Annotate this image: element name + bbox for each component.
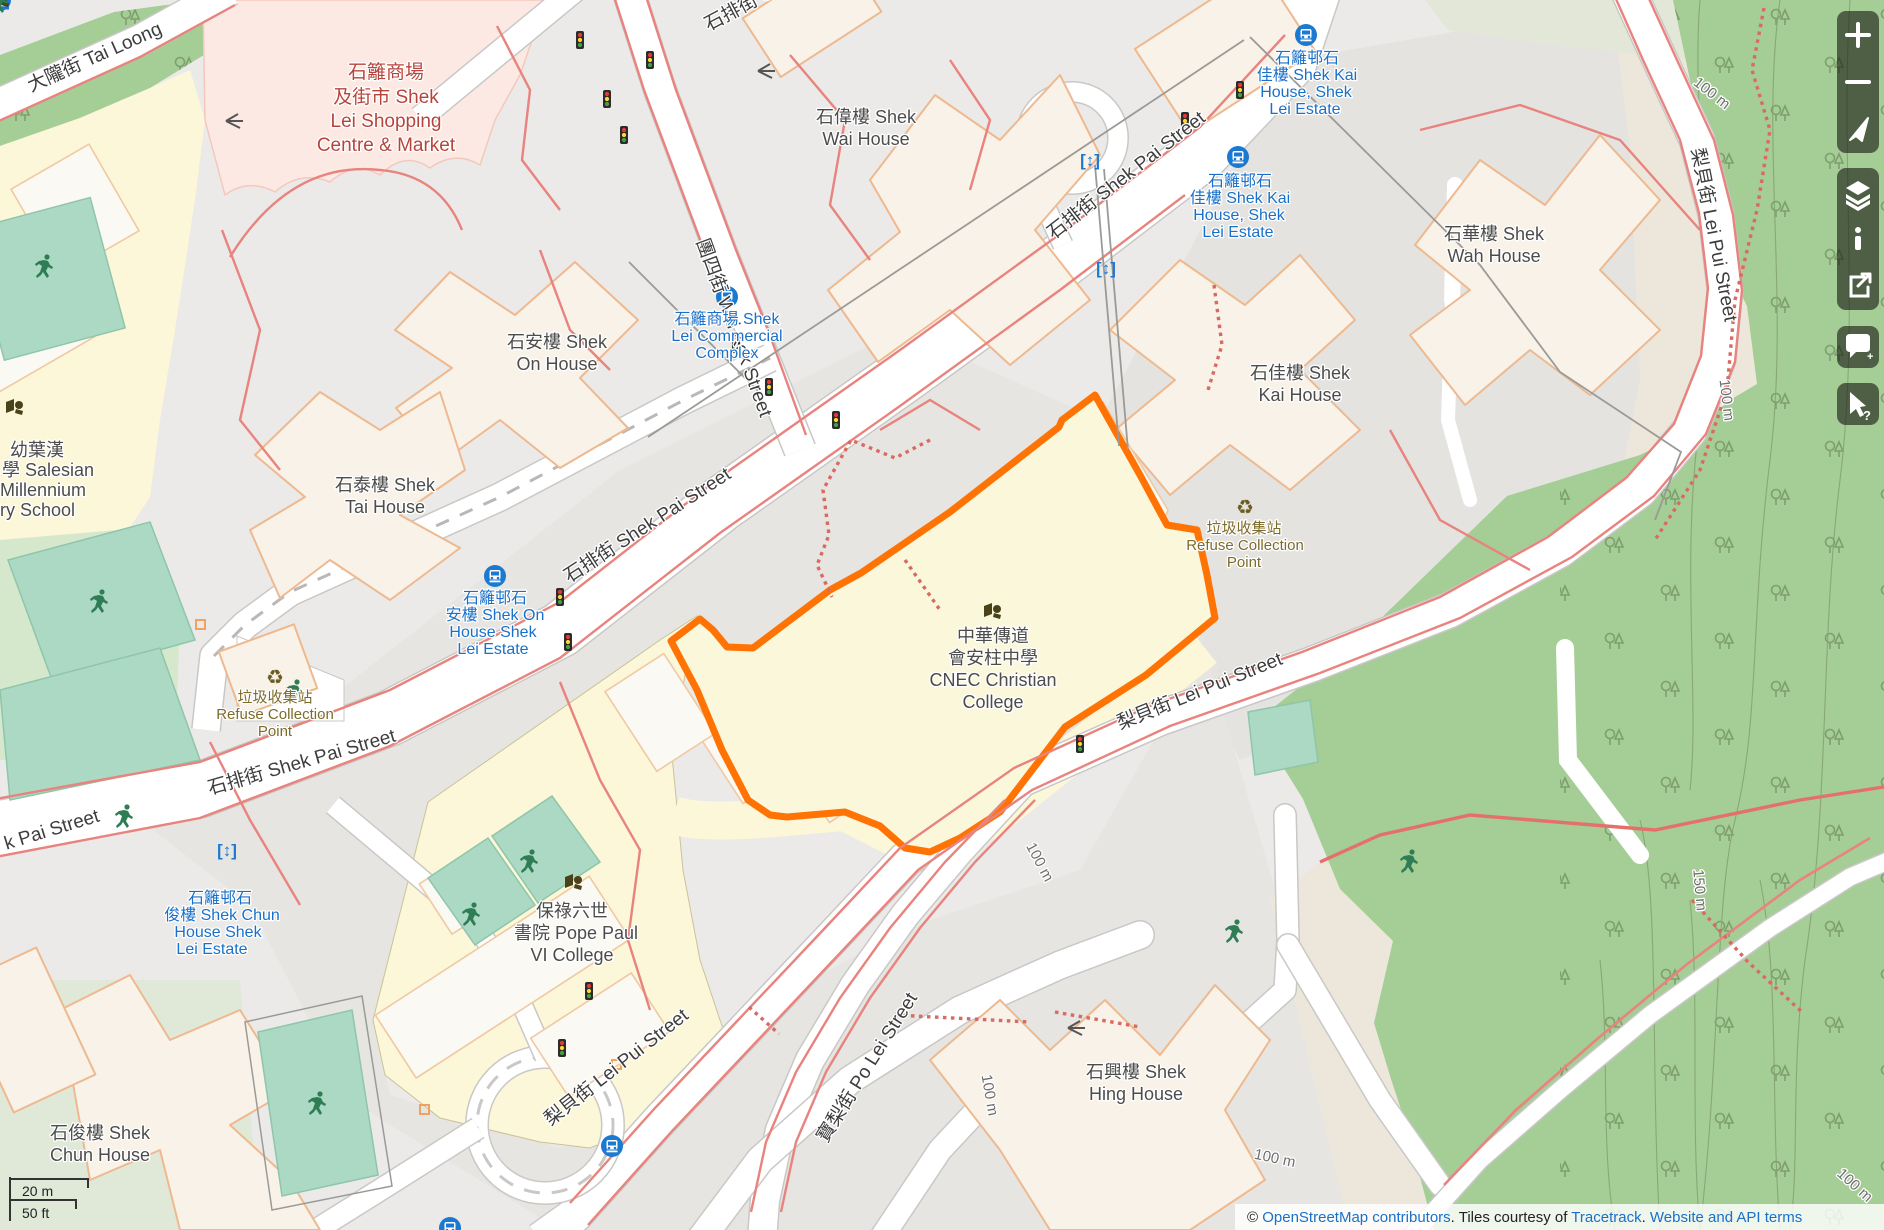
svg-text:House, Shek: House, Shek [1260, 84, 1353, 101]
svg-text:Wai House: Wai House [822, 129, 909, 149]
svg-text:佳樓 Shek Kai: 佳樓 Shek Kai [1257, 66, 1358, 84]
svg-text:House Shek: House Shek [174, 924, 262, 941]
svg-text:石籬商場 Shek: 石籬商場 Shek [675, 309, 781, 328]
svg-text:石泰樓 Shek: 石泰樓 Shek [335, 475, 436, 495]
svg-text:50 ft: 50 ft [22, 1205, 49, 1221]
svg-text:Lei Estate: Lei Estate [176, 941, 247, 958]
svg-text:Lei Commercial: Lei Commercial [671, 328, 782, 345]
svg-text:幼葉漢: 幼葉漢 [10, 440, 64, 460]
svg-text:垃圾收集站: 垃圾收集站 [237, 689, 312, 706]
svg-text:Chun House: Chun House [50, 1145, 150, 1165]
svg-text:Hing House: Hing House [1089, 1084, 1183, 1104]
svg-text:石籬邨石: 石籬邨石 [188, 888, 252, 907]
svg-text:150 m: 150 m [1689, 869, 1710, 912]
svg-text:保祿六世: 保祿六世 [536, 901, 608, 921]
svg-text:石籬邨石: 石籬邨石 [463, 588, 527, 607]
svg-text:CNEC Christian: CNEC Christian [929, 670, 1056, 690]
svg-text:College: College [962, 692, 1023, 712]
svg-text:+: + [1867, 351, 1873, 363]
svg-text:Kai House: Kai House [1258, 385, 1341, 405]
svg-text:石偉樓 Shek: 石偉樓 Shek [816, 107, 917, 127]
svg-text:Centre & Market: Centre & Market [317, 135, 456, 156]
svg-text:及街市 Shek: 及街市 Shek [333, 86, 439, 108]
svg-text:?: ? [1863, 408, 1871, 423]
svg-text:VI College: VI College [530, 945, 613, 965]
svg-text:Lei Estate: Lei Estate [1269, 101, 1340, 118]
svg-text:Refuse Collection: Refuse Collection [1186, 537, 1304, 554]
svg-text:書院 Pope Paul: 書院 Pope Paul [514, 923, 638, 943]
svg-text:安樓 Shek On: 安樓 Shek On [446, 606, 545, 624]
svg-text:Wah House: Wah House [1447, 246, 1540, 266]
svg-text:石佳樓 Shek: 石佳樓 Shek [1250, 363, 1351, 383]
svg-text:ry School: ry School [0, 500, 75, 520]
svg-text:會安柱中學: 會安柱中學 [948, 648, 1038, 668]
svg-text:Millennium: Millennium [0, 480, 86, 500]
svg-text:On House: On House [516, 354, 597, 374]
svg-text:學 Salesian: 學 Salesian [2, 460, 94, 480]
svg-text:石籬邨石: 石籬邨石 [1275, 48, 1339, 67]
svg-text:Lei Shopping: Lei Shopping [331, 111, 442, 132]
svg-text:♻: ♻ [1236, 497, 1254, 519]
svg-text:Refuse Collection: Refuse Collection [216, 706, 334, 723]
svg-text:石籬邨石: 石籬邨石 [1208, 171, 1272, 190]
svg-text:石安樓 Shek: 石安樓 Shek [507, 332, 608, 352]
svg-text:石籬商場: 石籬商場 [348, 61, 424, 83]
svg-text:© OpenStreetMap contributors.: © OpenStreetMap contributors. Tiles cour… [1247, 1209, 1802, 1226]
svg-text:House, Shek: House, Shek [1193, 207, 1286, 224]
svg-text:♻: ♻ [266, 667, 284, 689]
svg-text:石興樓 Shek: 石興樓 Shek [1086, 1062, 1187, 1082]
svg-text:石華樓 Shek: 石華樓 Shek [1444, 224, 1545, 244]
svg-text:Lei Estate: Lei Estate [457, 641, 528, 658]
svg-text:Tai House: Tai House [345, 497, 425, 517]
svg-text:Complex: Complex [695, 345, 758, 362]
svg-text:佳樓 Shek Kai: 佳樓 Shek Kai [1190, 189, 1291, 207]
svg-text:中華傳道: 中華傳道 [957, 626, 1029, 646]
svg-text:Lei Estate: Lei Estate [1202, 224, 1273, 241]
svg-text:House Shek: House Shek [449, 624, 537, 641]
svg-text:俊樓 Shek Chun: 俊樓 Shek Chun [164, 906, 280, 924]
svg-text:Point: Point [258, 723, 293, 740]
svg-text:20 m: 20 m [22, 1183, 53, 1199]
svg-text:垃圾收集站: 垃圾收集站 [1206, 520, 1281, 537]
svg-text:Point: Point [1227, 554, 1262, 571]
svg-text:石俊樓 Shek: 石俊樓 Shek [50, 1123, 151, 1143]
